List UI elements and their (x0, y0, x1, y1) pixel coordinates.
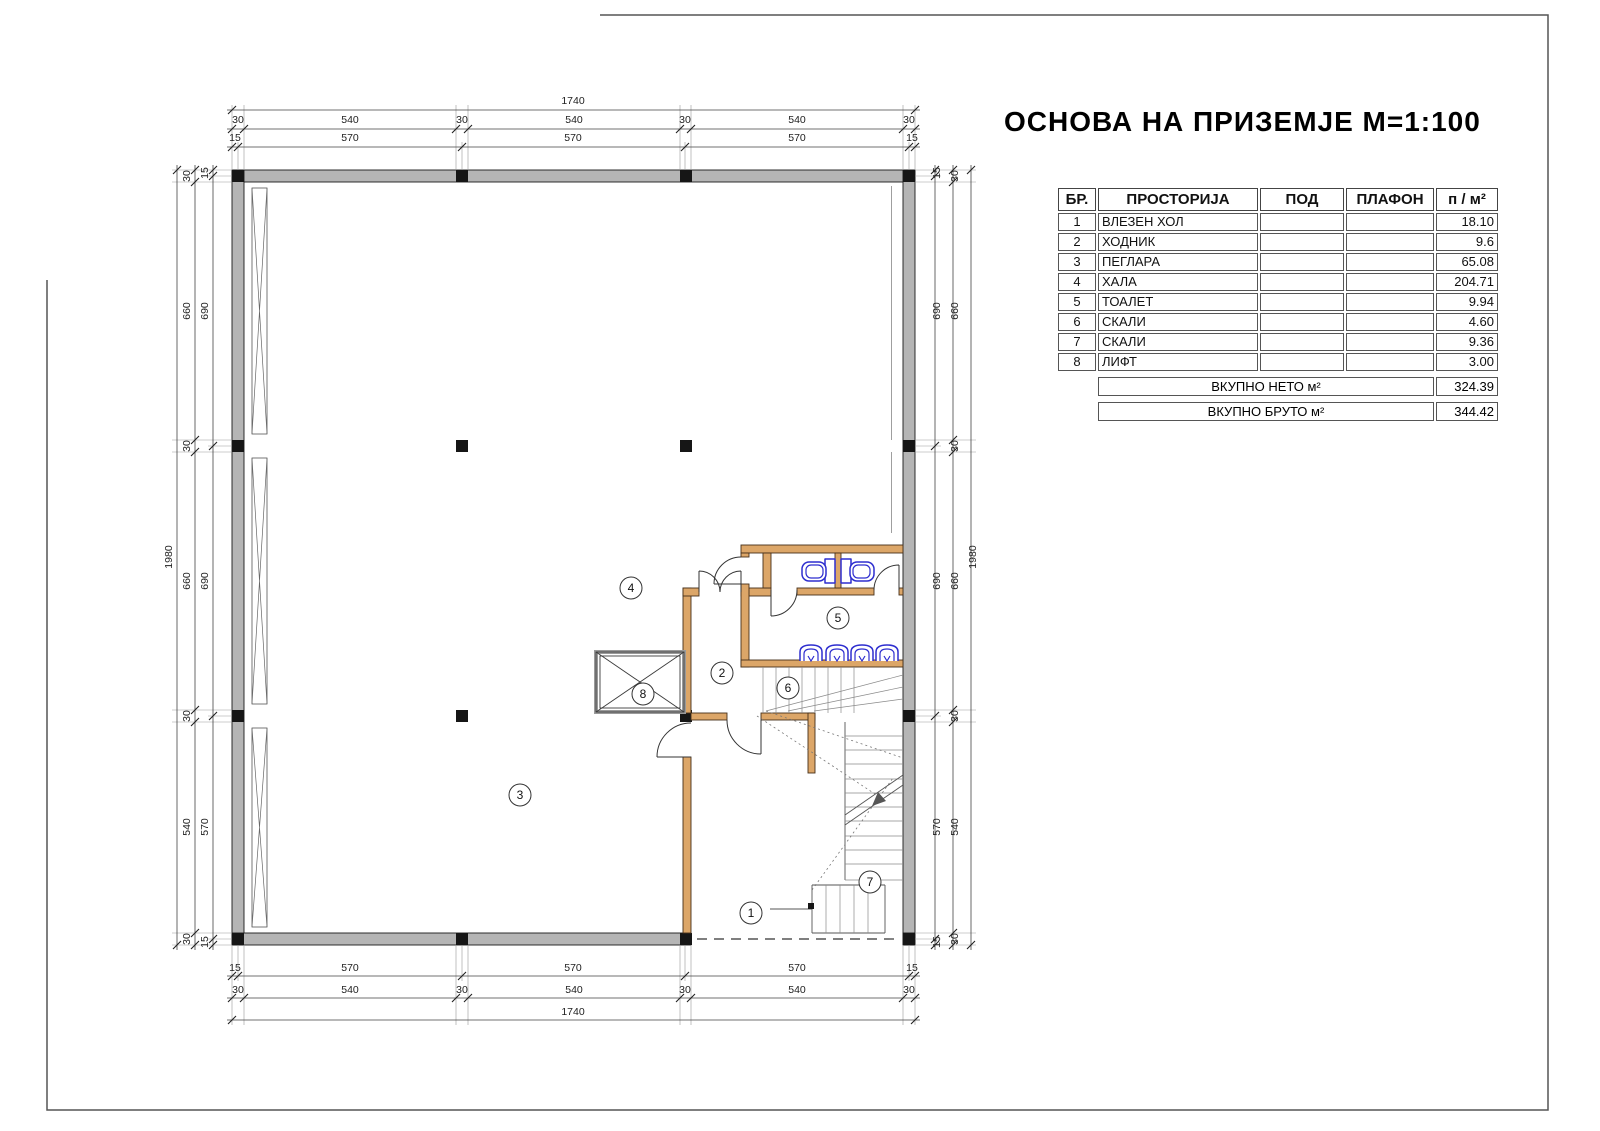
room-labels: 1 2 3 4 5 6 7 8 (509, 577, 881, 924)
total-neto-label: ВКУПНО НЕТО м² (1098, 377, 1434, 396)
room-number-1: 1 (748, 906, 755, 920)
dim-label: 15 (229, 962, 241, 974)
dim-label: 15 (199, 936, 211, 948)
row-num: 6 (1058, 313, 1096, 331)
urinal-icon (826, 645, 848, 661)
row-plafon (1346, 353, 1434, 371)
dim-label: 690 (931, 302, 943, 320)
structural-columns (232, 170, 915, 945)
dim-label: 660 (181, 572, 193, 590)
row-area: 65.08 (1436, 253, 1498, 271)
urinal-icon (851, 645, 873, 661)
dim-label: 570 (341, 962, 359, 974)
row-num: 4 (1058, 273, 1096, 291)
row-pod (1260, 213, 1344, 231)
dim-label: 570 (788, 132, 806, 144)
col-header-number: БР. (1058, 188, 1096, 211)
stair-direction-arrow (872, 792, 886, 806)
dim-label: 660 (949, 572, 961, 590)
dim-label: 30 (949, 170, 961, 182)
row-pod (1260, 233, 1344, 251)
dim-label: 30 (181, 933, 193, 945)
dim-label: 15 (906, 962, 918, 974)
row-area: 9.36 (1436, 333, 1498, 351)
drawing-title: ОСНОВА НА ПРИЗЕМЈЕ М=1:100 (1004, 106, 1481, 138)
row-num: 7 (1058, 333, 1096, 351)
dim-label: 690 (931, 572, 943, 590)
row-pod (1260, 253, 1344, 271)
row-name: ХАЛА (1098, 273, 1258, 291)
dim-label: 570 (199, 818, 211, 836)
total-bruto-row: ВКУПНО БРУТО м² 344.42 (1098, 402, 1498, 421)
room-number-3: 3 (517, 788, 524, 802)
areas-table-grid: БР. ПРОСТОРИЈА ПОД ПЛАФОН п / м² 1 ВЛЕЗЕ… (1058, 188, 1498, 371)
dim-label: 30 (949, 440, 961, 452)
row-pod (1260, 333, 1344, 351)
dim-label: 570 (931, 818, 943, 836)
dimensions: 1740 30 540 30 540 30 540 30 15 570 570 … (163, 95, 979, 1025)
dim-label: 570 (788, 962, 806, 974)
exterior-walls (232, 170, 915, 945)
row-name: СКАЛИ (1098, 313, 1258, 331)
toilet-icon (841, 559, 874, 583)
room-number-7: 7 (867, 875, 874, 889)
dim-label: 570 (564, 962, 582, 974)
row-plafon (1346, 313, 1434, 331)
row-plafon (1346, 293, 1434, 311)
dim-label: 1980 (967, 545, 979, 569)
dim-label: 1980 (163, 545, 175, 569)
dim-label: 30 (949, 710, 961, 722)
dim-label: 30 (903, 984, 915, 996)
dim-label: 690 (199, 572, 211, 590)
dim-label: 30 (679, 114, 691, 126)
window-strips (252, 188, 267, 927)
row-name: ТОАЛЕТ (1098, 293, 1258, 311)
total-bruto-label: ВКУПНО БРУТО м² (1098, 402, 1434, 421)
row-area: 204.71 (1436, 273, 1498, 291)
row-pod (1260, 273, 1344, 291)
row-plafon (1346, 233, 1434, 251)
col-header-floor: ПОД (1260, 188, 1344, 211)
toilet-icon (802, 559, 835, 583)
row-name: ХОДНИК (1098, 233, 1258, 251)
dim-label: 1740 (561, 95, 585, 107)
dim-label: 30 (232, 114, 244, 126)
dim-label: 30 (903, 114, 915, 126)
floor-plan: 1740 30 540 30 540 30 540 30 15 570 570 … (0, 0, 1000, 1131)
row-plafon (1346, 273, 1434, 291)
room-number-2: 2 (719, 666, 726, 680)
row-name: ЛИФТ (1098, 353, 1258, 371)
room-number-6: 6 (785, 681, 792, 695)
row-name: ВЛЕЗЕН ХОЛ (1098, 213, 1258, 231)
stairs (757, 667, 903, 933)
row-area: 3.00 (1436, 353, 1498, 371)
dim-label: 1740 (561, 1006, 585, 1018)
total-neto-value: 324.39 (1436, 377, 1498, 396)
row-num: 2 (1058, 233, 1096, 251)
dim-label: 540 (565, 984, 583, 996)
sanitary-fixtures (800, 559, 898, 661)
row-plafon (1346, 333, 1434, 351)
dim-label: 540 (181, 818, 193, 836)
col-header-ceiling: ПЛАФОН (1346, 188, 1434, 211)
row-area: 9.94 (1436, 293, 1498, 311)
row-pod (1260, 353, 1344, 371)
dim-label: 30 (181, 170, 193, 182)
dim-label: 15 (199, 167, 211, 179)
col-header-area: п / м² (1436, 188, 1498, 211)
dim-label: 30 (679, 984, 691, 996)
dim-label: 15 (931, 167, 943, 179)
dim-label: 540 (788, 984, 806, 996)
dim-label: 570 (341, 132, 359, 144)
dim-label: 30 (456, 984, 468, 996)
row-name: СКАЛИ (1098, 333, 1258, 351)
row-area: 9.6 (1436, 233, 1498, 251)
row-area: 4.60 (1436, 313, 1498, 331)
dim-label: 30 (232, 984, 244, 996)
dim-label: 15 (229, 132, 241, 144)
dim-label: 540 (341, 114, 359, 126)
stair-run-7 (757, 711, 903, 933)
total-neto-row: ВКУПНО НЕТО м² 324.39 (1098, 377, 1498, 396)
row-plafon (1346, 213, 1434, 231)
dim-label: 540 (949, 818, 961, 836)
row-num: 8 (1058, 353, 1096, 371)
dim-label: 570 (564, 132, 582, 144)
row-pod (1260, 293, 1344, 311)
row-plafon (1346, 253, 1434, 271)
row-name: ПЕГЛАРА (1098, 253, 1258, 271)
row-pod (1260, 313, 1344, 331)
room-number-5: 5 (835, 611, 842, 625)
urinal-icon (800, 645, 822, 661)
dim-label: 30 (949, 933, 961, 945)
row-num: 5 (1058, 293, 1096, 311)
dim-label: 30 (181, 440, 193, 452)
dim-label: 660 (949, 302, 961, 320)
dim-label: 15 (931, 936, 943, 948)
row-num: 3 (1058, 253, 1096, 271)
dim-label: 30 (181, 710, 193, 722)
room-number-8: 8 (640, 687, 647, 701)
areas-table: БР. ПРОСТОРИЈА ПОД ПЛАФОН п / м² 1 ВЛЕЗЕ… (1058, 188, 1498, 421)
urinal-icon (876, 645, 898, 661)
room-number-4: 4 (628, 581, 635, 595)
col-header-room: ПРОСТОРИЈА (1098, 188, 1258, 211)
total-bruto-value: 344.42 (1436, 402, 1498, 421)
row-area: 18.10 (1436, 213, 1498, 231)
dim-label: 540 (788, 114, 806, 126)
dim-label: 660 (181, 302, 193, 320)
dim-label: 540 (565, 114, 583, 126)
row-num: 1 (1058, 213, 1096, 231)
dim-label: 540 (341, 984, 359, 996)
dim-label: 30 (456, 114, 468, 126)
dim-label: 15 (906, 132, 918, 144)
dim-label: 690 (199, 302, 211, 320)
